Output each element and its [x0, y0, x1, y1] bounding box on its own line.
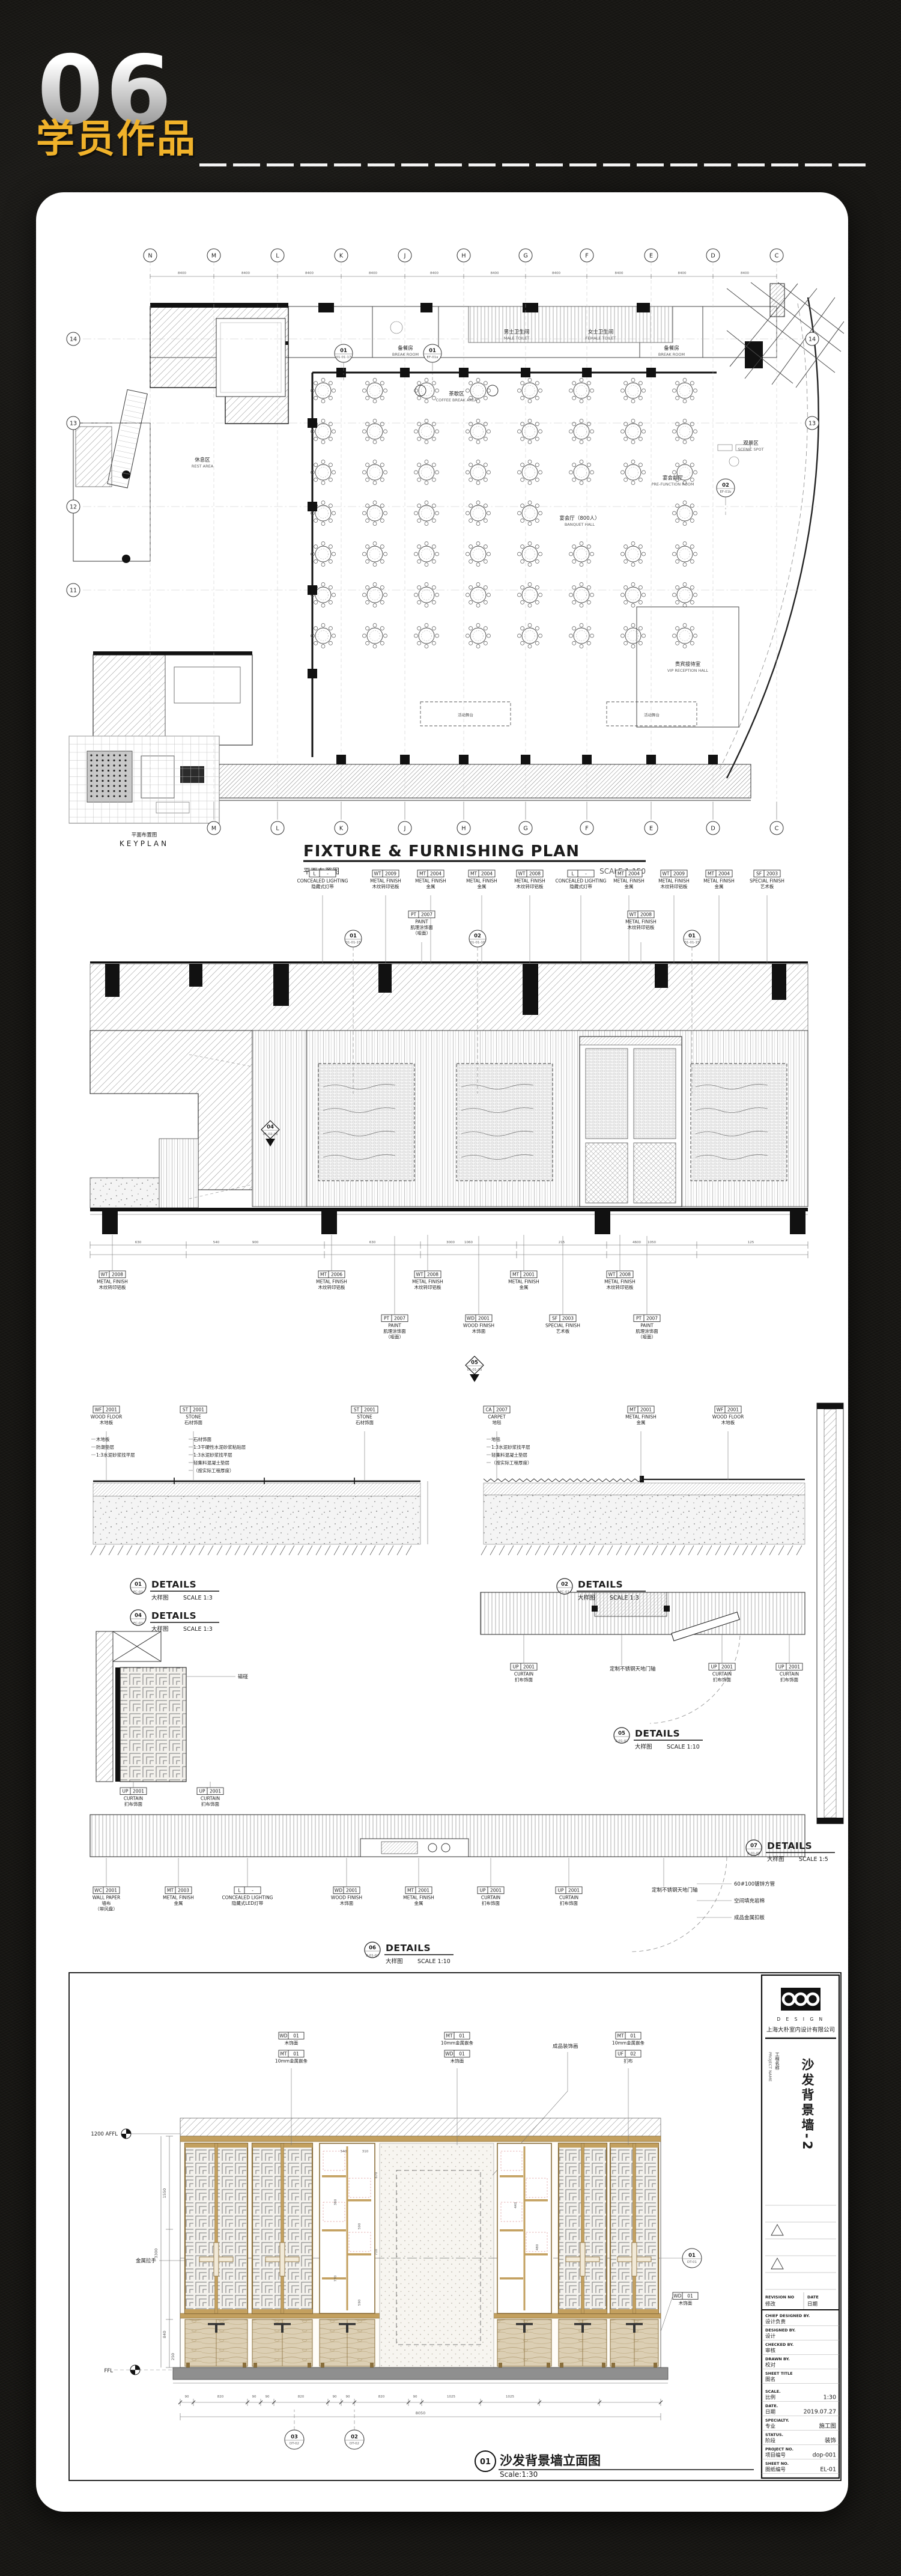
label: 820: [217, 2395, 224, 2399]
banquet-table: [569, 583, 594, 607]
label: 扪布饰面: [515, 1676, 533, 1682]
label: 2001: [133, 1789, 144, 1794]
label: SHEET NO.: [765, 2461, 789, 2466]
reference-tag: 02DT-02: [345, 2430, 364, 2449]
label: 8400: [241, 272, 250, 275]
label: 防潮垫层: [96, 1444, 114, 1450]
label: 成品金属扣板: [734, 1914, 765, 1921]
grid-bubble: H: [457, 249, 470, 262]
label: G: [523, 253, 527, 260]
label: FC-01: [133, 1622, 143, 1625]
label: H: [461, 253, 466, 260]
label: E-01-05: [747, 1852, 760, 1856]
banquet-table: [363, 583, 387, 607]
section-title: 学员作品: [36, 118, 197, 162]
label: CONCEALED LIGHTING: [222, 1895, 273, 1901]
label: 8400: [305, 272, 314, 275]
grid-bubble: G: [519, 821, 532, 835]
label: D E S I G N: [777, 2017, 824, 2022]
grid-bubble: 13: [67, 416, 80, 430]
label: DETAILS: [151, 1579, 196, 1590]
label: WOOD FINISH: [331, 1895, 362, 1901]
material-callout: WT2008METAL FINISH木纹转印铝板: [625, 911, 657, 964]
label: 10mm金属嵌条: [441, 2040, 474, 2046]
banquet-table: [466, 624, 491, 648]
label: 02: [474, 933, 481, 939]
material-callout: PT2007PAINT肌理涂饰面（哑面）: [408, 911, 435, 964]
label: 金属: [478, 883, 487, 889]
material-callout: WT2009METAL FINISH木纹转印铝板: [370, 870, 401, 964]
grid-bubble: D: [706, 821, 720, 835]
label: -: [585, 871, 587, 877]
label: 定制不锈钢天地门轴: [610, 1666, 656, 1672]
grid-bubble: J: [398, 821, 411, 835]
label: SCALE 1:3: [183, 1595, 213, 1601]
label: 扪布饰面: [713, 1676, 731, 1682]
grid-bubble: 14: [67, 332, 80, 346]
label: METAL FINISH: [625, 1414, 657, 1420]
label: 90: [265, 2395, 270, 2399]
label: 01: [293, 2051, 299, 2057]
label: FIXTURE & FURNISHING PLAN: [303, 842, 580, 860]
label: STATUS.: [765, 2432, 783, 2437]
column: [400, 368, 410, 377]
label: 大样图: [767, 1856, 784, 1863]
banquet-table: [466, 419, 491, 444]
label: MT: [629, 1407, 636, 1413]
banquet-table: [518, 624, 542, 648]
label: 13: [808, 421, 816, 427]
label: 墙布: [102, 1900, 111, 1906]
label: SCALE 1:10: [667, 1744, 700, 1750]
label: CARPET: [488, 1414, 506, 1420]
label: 地毯: [493, 1419, 502, 1425]
label: 540: [213, 1241, 220, 1244]
label: METAL FINISH: [412, 1279, 443, 1285]
label: 金属: [637, 1419, 646, 1425]
label: 01: [340, 348, 347, 354]
label: DETAILS: [151, 1610, 196, 1621]
banquet-table: [569, 542, 594, 567]
label: 11: [70, 588, 77, 594]
label: 01-02-16: [263, 1133, 278, 1136]
label: 8400: [369, 272, 377, 275]
label: K: [339, 826, 344, 832]
banquet-table: [518, 460, 542, 485]
column: [582, 755, 592, 764]
label: 2001: [193, 1407, 204, 1413]
grid-bubble: C: [770, 249, 783, 262]
label: F: [585, 253, 588, 260]
label: 02: [561, 1582, 568, 1588]
banquet-table: [363, 542, 387, 567]
label: WF: [95, 1407, 102, 1413]
label: FC-01: [133, 1591, 143, 1594]
banquet-table: [569, 419, 594, 444]
label: SHEET TITLE: [765, 2371, 793, 2376]
label: 休息区: [195, 457, 210, 463]
label: 8400: [178, 272, 186, 275]
label: 木纹转印铝板: [318, 1284, 345, 1290]
label: WC: [94, 1888, 102, 1893]
label: KEYPLAN: [120, 839, 169, 848]
label: 比例: [765, 2395, 775, 2401]
label: 木地板: [100, 1419, 114, 1425]
label: 平面布置图: [132, 832, 157, 838]
label: PAINT: [640, 1323, 654, 1329]
label: L: [276, 826, 279, 832]
label: 成品装饰画: [553, 2043, 578, 2050]
banquet-table: [414, 624, 439, 648]
material-callout: WT2008METAL FINISH木纹转印铝板: [604, 1235, 636, 1290]
banquet-table: [518, 379, 542, 403]
label: WT: [608, 1272, 616, 1277]
label: MT: [280, 2051, 287, 2057]
material-callout: WC2001WALL PAPER墙布（带风盘）: [93, 1858, 121, 1912]
column: [582, 368, 592, 377]
banquet-table: [518, 419, 542, 444]
label: 扪布饰面: [560, 1900, 578, 1906]
label: 90: [185, 2395, 189, 2399]
label: SPECIAL FINISH: [545, 1323, 580, 1329]
banquet-table: [673, 624, 697, 648]
label: SCALE 1:10: [417, 1958, 450, 1965]
label: 定制不锈钢天地门轴: [652, 1887, 698, 1893]
grid-bubble: H: [457, 821, 470, 835]
header-dashed-line: [199, 163, 871, 166]
material-callout: PT2007PAINT肌理涂饰面（哑面）: [634, 1236, 660, 1340]
label: 01-01-15: [467, 1368, 482, 1372]
label: 2001: [478, 1316, 490, 1321]
label: 90: [333, 2395, 337, 2399]
label: 3000: [446, 1241, 455, 1244]
banquet-table: [673, 379, 697, 403]
banquet-table: [621, 379, 646, 403]
label: （哑面）: [638, 1335, 656, 1340]
label: DETAILS: [578, 1579, 623, 1590]
label: 肌理涂饰面: [410, 924, 433, 930]
label: 审核: [765, 2348, 776, 2354]
label: 石材饰面: [184, 1419, 202, 1425]
banquet-table: [518, 501, 542, 526]
label: 图名: [765, 2377, 775, 2383]
label: PROJECT NO.: [765, 2447, 793, 2452]
label: 250: [171, 2353, 175, 2360]
grid-bubble: F: [580, 821, 593, 835]
lattice-screen-panel: [185, 2143, 247, 2313]
label: DETAILS: [386, 1943, 431, 1953]
label: UP: [557, 1888, 563, 1893]
label: 90: [252, 2395, 256, 2399]
label: 01: [687, 2294, 693, 2299]
section-marker: 0501-01-15: [466, 1356, 484, 1382]
label: 1550: [162, 2188, 167, 2199]
room-label: 休息区REST AREA: [192, 457, 214, 469]
label: （哑面）: [386, 1335, 404, 1340]
label: WD: [335, 1888, 342, 1893]
column: [459, 755, 469, 764]
material-callout: WD01木饰面: [661, 2292, 698, 2331]
lattice-screen-panel: [252, 2143, 312, 2313]
label: 大样图: [151, 1625, 169, 1633]
label: 日期: [765, 2410, 775, 2416]
label: （带风盘）: [95, 1906, 118, 1912]
grid-bubble: J: [398, 249, 411, 262]
column: [308, 585, 317, 595]
material-callout: UP2001CURTAIN扪布饰面: [197, 1782, 223, 1807]
label: DT-02: [350, 2442, 359, 2446]
grid-bubble: E: [645, 821, 658, 835]
room-label: 宴会厅（800人）BANQUET HALL: [559, 515, 599, 527]
label: WOOD FLOOR: [712, 1414, 744, 1420]
reference-tag: 0101-01-17: [335, 344, 353, 362]
label: MT: [512, 1272, 519, 1277]
label: -: [252, 1888, 253, 1893]
label: 轻集料混凝土垫层: [491, 1452, 527, 1458]
label: C: [775, 826, 779, 832]
material-callout: L-CONCEALED LIGHTING隐藏式LED灯带: [222, 1858, 273, 1906]
label: 贵宾接待室: [675, 661, 701, 668]
label: CURTAIN: [514, 1672, 533, 1677]
reference-tag: 0101-01-15: [684, 930, 700, 947]
label: 630: [369, 1241, 376, 1244]
label: N: [148, 253, 152, 260]
label: 2001: [106, 1407, 117, 1413]
label: PT: [384, 1316, 390, 1321]
banquet-table: [414, 583, 439, 607]
material-callout: WD2001WOOD FINISH木饰面: [463, 1236, 494, 1334]
label: 820: [298, 2395, 305, 2399]
banquet-table: [414, 501, 439, 526]
label: METAL FINISH: [316, 1279, 347, 1285]
label: SPECIAL FINISH: [750, 878, 784, 884]
grid-bubble: K: [335, 249, 348, 262]
label: METAL FINISH: [370, 878, 401, 884]
label: CURTAIN: [780, 1672, 799, 1677]
column: [308, 418, 317, 428]
label: 大样图: [386, 1958, 403, 1965]
material-callout: WT2008METAL FINISH木纹转印铝板: [514, 870, 545, 964]
label: J: [404, 253, 406, 260]
label: （按实际工程厚度）: [491, 1460, 532, 1466]
label: 10mm金属嵌条: [612, 2040, 645, 2046]
layer-notes: 地毯1:3水泥砂浆找平层轻集料混凝土垫层（按实际工程厚度）: [487, 1436, 532, 1466]
label: 2004: [481, 871, 493, 877]
label: dop-001: [813, 2452, 836, 2459]
material-callout: UP2001CURTAIN扪布饰面: [709, 1634, 735, 1682]
banquet-table: [414, 419, 439, 444]
banquet-table: [673, 501, 697, 526]
label: 8400: [552, 272, 560, 275]
label: 设计: [765, 2333, 776, 2340]
label: WD: [445, 2051, 453, 2057]
display-shelf-unit: [320, 2143, 375, 2313]
label: 2008: [427, 1272, 438, 1277]
label: 隐藏式灯带: [569, 883, 592, 889]
label: 木纹转印铝板: [607, 1284, 634, 1290]
label: 07: [750, 1843, 757, 1849]
label: 4600: [633, 1241, 641, 1244]
grid-bubble: M: [207, 821, 220, 835]
layer-notes: 木地板防潮垫层1:3水泥砂浆找平层: [91, 1436, 135, 1458]
label: ST: [183, 1407, 189, 1413]
label: L: [276, 253, 279, 260]
label: 1:3干硬性水泥砂浆粘贴层: [193, 1444, 246, 1450]
label: 1060: [464, 1241, 473, 1244]
drawing-sheet-panel: NMLKJHGFEDC84008400840084008400840084008…: [36, 192, 848, 2512]
label: D: [711, 826, 715, 832]
label: MT: [708, 871, 714, 877]
column: [400, 755, 410, 764]
label: MT: [617, 871, 624, 877]
label: MT: [320, 1272, 327, 1277]
label: Scale:1:30: [500, 2470, 538, 2479]
label: CURTAIN: [559, 1895, 578, 1901]
label: 上海大朴室内设计有限公司: [766, 2026, 835, 2033]
label: 670: [375, 2172, 378, 2178]
banquet-table: [518, 583, 542, 607]
label: 修改: [765, 2301, 776, 2307]
label: STONE: [186, 1414, 201, 1420]
label: BREAK ROOM: [658, 352, 685, 357]
label: 2004: [718, 871, 730, 877]
label: CHECKED BY.: [765, 2342, 793, 2347]
label: 2001: [727, 1407, 739, 1413]
banquet-table: [363, 379, 387, 403]
material-callout: WT2008METAL FINISH木纹转印铝板: [97, 1235, 128, 1290]
column: [336, 368, 346, 377]
label: 木饰面: [340, 1900, 354, 1906]
label: DRAWN BY.: [765, 2357, 790, 2361]
base-cabinet: [185, 2319, 247, 2367]
label: 2009: [673, 871, 685, 877]
grid-bubble: L: [271, 821, 284, 835]
label: E-01-02: [615, 1740, 628, 1743]
banquet-table: [466, 460, 491, 485]
label: 扪布饰面: [780, 1676, 798, 1682]
label: 隐藏式LED灯带: [232, 1900, 264, 1906]
label: FFL: [104, 2368, 113, 2374]
label: 隐藏式灯带: [311, 883, 334, 889]
column: [308, 502, 317, 511]
reference-tag: 01DT-01: [682, 2249, 702, 2268]
label: 3300: [154, 2249, 159, 2259]
label: WT: [416, 1272, 423, 1277]
grid-bubble: L: [271, 249, 284, 262]
label: PROJECT NAME: [768, 2052, 772, 2081]
banquet-table: [569, 379, 594, 403]
label: 沙发背景墙立面图: [500, 2453, 601, 2468]
label: 01: [135, 1582, 142, 1588]
label: UP: [512, 1664, 518, 1670]
banquet-table: [621, 460, 646, 485]
label: DETAILS: [767, 1841, 812, 1851]
label: DATE.: [765, 2404, 778, 2408]
label: 1:3水泥砂浆找平层: [96, 1452, 135, 1458]
grid-bubble: 11: [67, 583, 80, 597]
label: 04: [267, 1124, 274, 1130]
label: 02: [630, 2051, 636, 2057]
label: 06: [369, 1945, 376, 1951]
detail-title: 05E-01-02DETAILS大样图SCALE 1:10: [614, 1728, 703, 1750]
banquet-table: [466, 583, 491, 607]
banquet-table: [518, 542, 542, 567]
label: 设计负责: [765, 2319, 786, 2325]
label: 8400: [615, 272, 623, 275]
banquet-table: [311, 542, 336, 567]
marble-panel: [318, 1064, 787, 1181]
column: [708, 755, 718, 764]
label: 8400: [430, 272, 438, 275]
reference-tag: 01EF-01a: [423, 344, 441, 362]
label: 01: [688, 933, 696, 939]
label: SCENIC SPOT: [738, 447, 763, 452]
label: 2006: [331, 1272, 342, 1277]
label: BREAK ROOM: [392, 352, 419, 357]
label: 木纹转印铝板: [99, 1284, 126, 1290]
label: METAL FINISH: [97, 1279, 128, 1285]
label: 肌理涂饰面: [636, 1328, 658, 1334]
label: DT-01: [687, 2261, 697, 2264]
label: WOOD FINISH: [463, 1323, 494, 1329]
label: SF: [756, 871, 762, 877]
material-callout: WT2009METAL FINISH木纹转印铝板: [658, 870, 690, 964]
label: METAL FINISH: [658, 878, 690, 884]
material-callout: WF2001WOOD FLOOR木地板: [91, 1406, 123, 1480]
label: 2003: [178, 1888, 189, 1893]
label: 木地板: [721, 1419, 735, 1425]
label: 02: [351, 2434, 358, 2440]
banquet-table: [363, 624, 387, 648]
label: 扪布饰面: [201, 1801, 219, 1807]
label: 装饰: [825, 2437, 836, 2444]
label: 01: [459, 2033, 465, 2039]
banquet-table: [569, 624, 594, 648]
label: DATE: [807, 2295, 819, 2300]
label: CA: [485, 1407, 492, 1413]
label: 女士卫生间: [588, 329, 614, 335]
base-cabinet: [559, 2319, 607, 2367]
label: M: [211, 253, 216, 260]
label: METAL FINISH: [466, 878, 497, 884]
label: 2001: [523, 1272, 535, 1277]
label: D: [711, 253, 715, 260]
label: 金属: [174, 1900, 183, 1906]
label: 2019.07.27: [804, 2409, 836, 2416]
label: 项目编号: [765, 2452, 786, 2459]
label: 日期: [807, 2301, 818, 2307]
banquet-table: [673, 542, 697, 567]
label: 阶段: [765, 2438, 776, 2444]
material-callout: UP2001CURTAIN扪布饰面: [511, 1634, 537, 1682]
label: 2009: [385, 871, 396, 877]
cad-drawing-canvas: NMLKJHGFEDC84008400840084008400840084008…: [36, 192, 848, 2512]
label: 01: [350, 933, 357, 939]
label: EL-01: [820, 2467, 836, 2473]
label: 茶歇区: [449, 391, 464, 397]
label: CONCEALED LIGHTING: [556, 878, 607, 884]
label: METAL FINISH: [163, 1895, 194, 1901]
label: PT: [411, 912, 417, 918]
label: 肌理涂饰面: [383, 1328, 406, 1334]
label: 扪布饰面: [482, 1900, 500, 1906]
room-label: 观景区SCENIC SPOT: [738, 440, 763, 452]
label: MT: [617, 2033, 623, 2039]
material-callout: UP2001CURTAIN扪布饰面: [120, 1782, 147, 1807]
banquet-table: [414, 542, 439, 567]
banquet-table: [363, 419, 387, 444]
label: 2007: [394, 1316, 405, 1321]
